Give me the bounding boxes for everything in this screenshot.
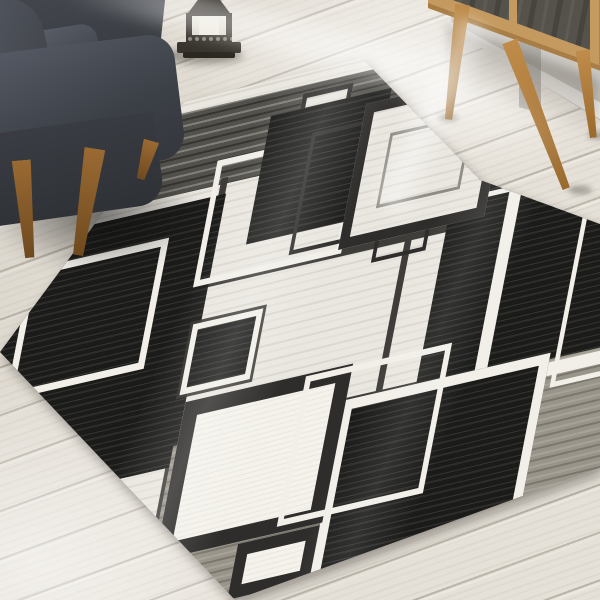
sideboard-door-panel xyxy=(517,0,590,50)
console-leg-shadow xyxy=(568,186,592,194)
armchair xyxy=(0,0,230,290)
room-scene xyxy=(0,0,600,600)
gray-strip-left xyxy=(0,531,153,600)
